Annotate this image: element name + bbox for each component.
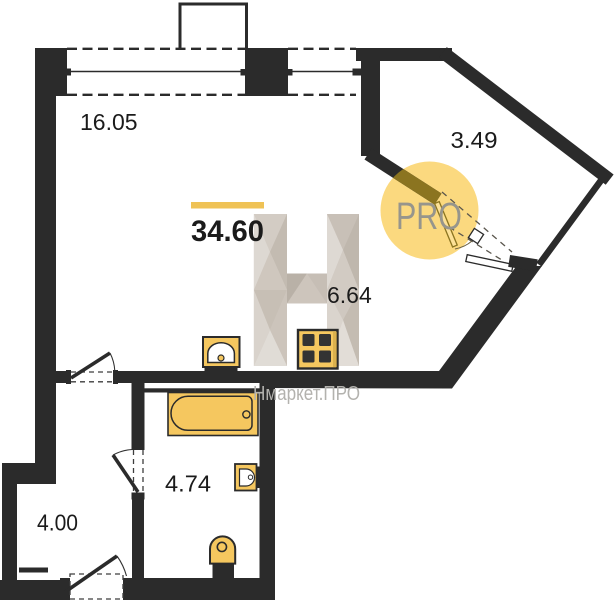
svg-text:4.00: 4.00 bbox=[37, 510, 78, 536]
svg-text:6.64: 6.64 bbox=[327, 282, 372, 308]
svg-text:3.49: 3.49 bbox=[451, 127, 498, 153]
svg-text:Нмаркет.ПРО: Нмаркет.ПРО bbox=[253, 383, 360, 405]
svg-text:PRO: PRO bbox=[396, 196, 462, 238]
svg-text:34.60: 34.60 bbox=[191, 215, 264, 248]
svg-text:4.74: 4.74 bbox=[165, 471, 211, 497]
svg-text:16.05: 16.05 bbox=[80, 109, 138, 135]
